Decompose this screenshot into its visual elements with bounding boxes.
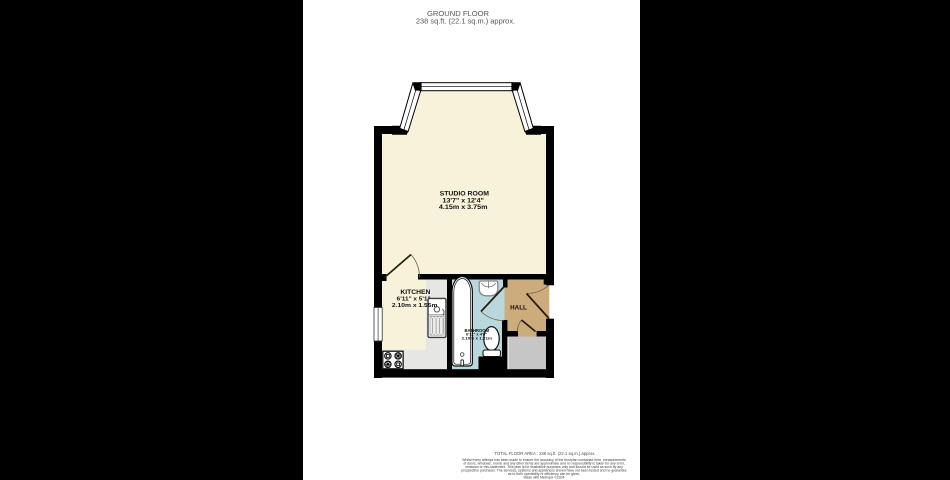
svg-text:TOTAL FLOOR AREA : 238 sq.ft.: TOTAL FLOOR AREA : 238 sq.ft. (22.1 sq.m…: [495, 451, 596, 456]
svg-text:238 sq.ft. (22.1 sq.m.) approx: 238 sq.ft. (22.1 sq.m.) approx.: [416, 17, 515, 26]
svg-text:2.10m x 1.21m: 2.10m x 1.21m: [462, 337, 493, 341]
svg-text:2.10m x 1.55m: 2.10m x 1.55m: [392, 303, 438, 309]
svg-text:6'11" x 5'1": 6'11" x 5'1": [397, 297, 431, 303]
svg-text:KITCHEN: KITCHEN: [400, 289, 431, 296]
svg-text:HALL: HALL: [510, 304, 527, 311]
svg-text:Made with Metropix ©2024: Made with Metropix ©2024: [524, 476, 565, 480]
svg-text:4.15m x 3.75m: 4.15m x 3.75m: [439, 204, 488, 211]
